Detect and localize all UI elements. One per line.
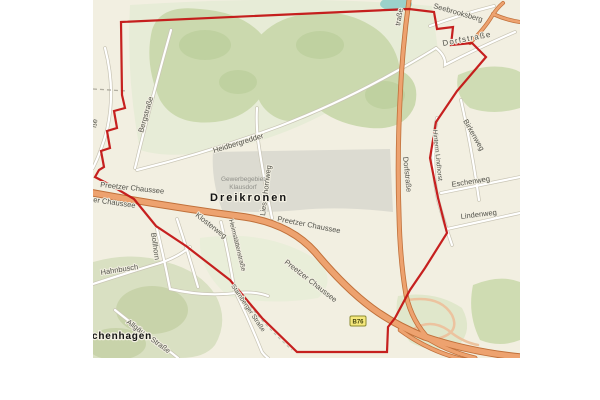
place-label-chenhagen: chenhagen [93, 331, 152, 342]
route-shield-label: B76 [352, 320, 364, 326]
forest-dark-spot [179, 30, 231, 60]
area-label-klausdorf: Klausdorf [229, 184, 257, 191]
map-svg: B76 Bergstraße Heidbergredder Liesenhorn… [93, 0, 520, 358]
page: { "map": { "place_labels": { "dreikronen… [0, 0, 600, 400]
route-shield: B76 [350, 316, 366, 326]
map-canvas[interactable]: B76 Bergstraße Heidbergredder Liesenhorn… [93, 0, 520, 358]
forest-dark-spot [296, 31, 344, 59]
forest-dark-spot [219, 70, 257, 94]
place-label-dreikronen: Dreikronen [210, 192, 288, 204]
area-label-gewerbegebiet: Gewerbegebiet [221, 176, 265, 183]
forest-southeast [471, 279, 520, 344]
forest-dark-spot [116, 286, 188, 334]
